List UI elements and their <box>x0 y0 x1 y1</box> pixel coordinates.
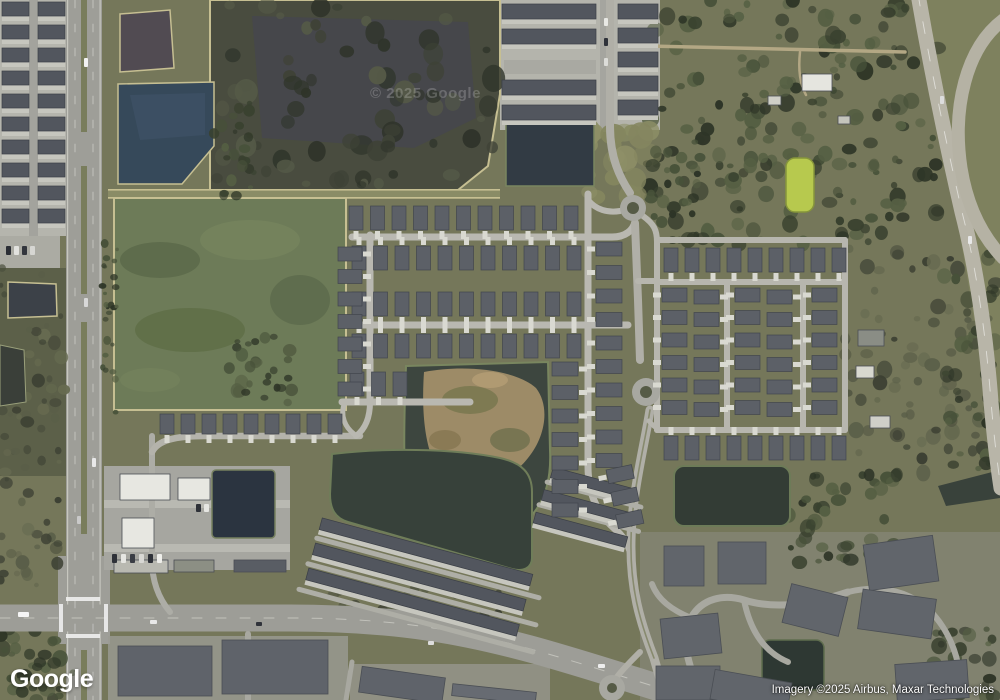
pond-cluster <box>506 122 594 186</box>
pond-left-2 <box>0 345 26 406</box>
map-watermark: © 2025 Google <box>370 85 481 102</box>
google-logo[interactable]: Google <box>10 665 93 694</box>
pond-small-top <box>120 10 174 72</box>
pond-commercial <box>212 470 275 538</box>
map-canvas[interactable]: © 2025 Google Google Imagery ©2025 Airbu… <box>0 0 1000 700</box>
pond-lime <box>786 158 814 212</box>
satellite-imagery <box>0 0 1000 700</box>
imagery-attribution: Imagery ©2025 Airbus, Maxar Technologies <box>772 684 994 696</box>
pond-compound <box>674 466 790 526</box>
pond-left-1 <box>8 282 57 318</box>
